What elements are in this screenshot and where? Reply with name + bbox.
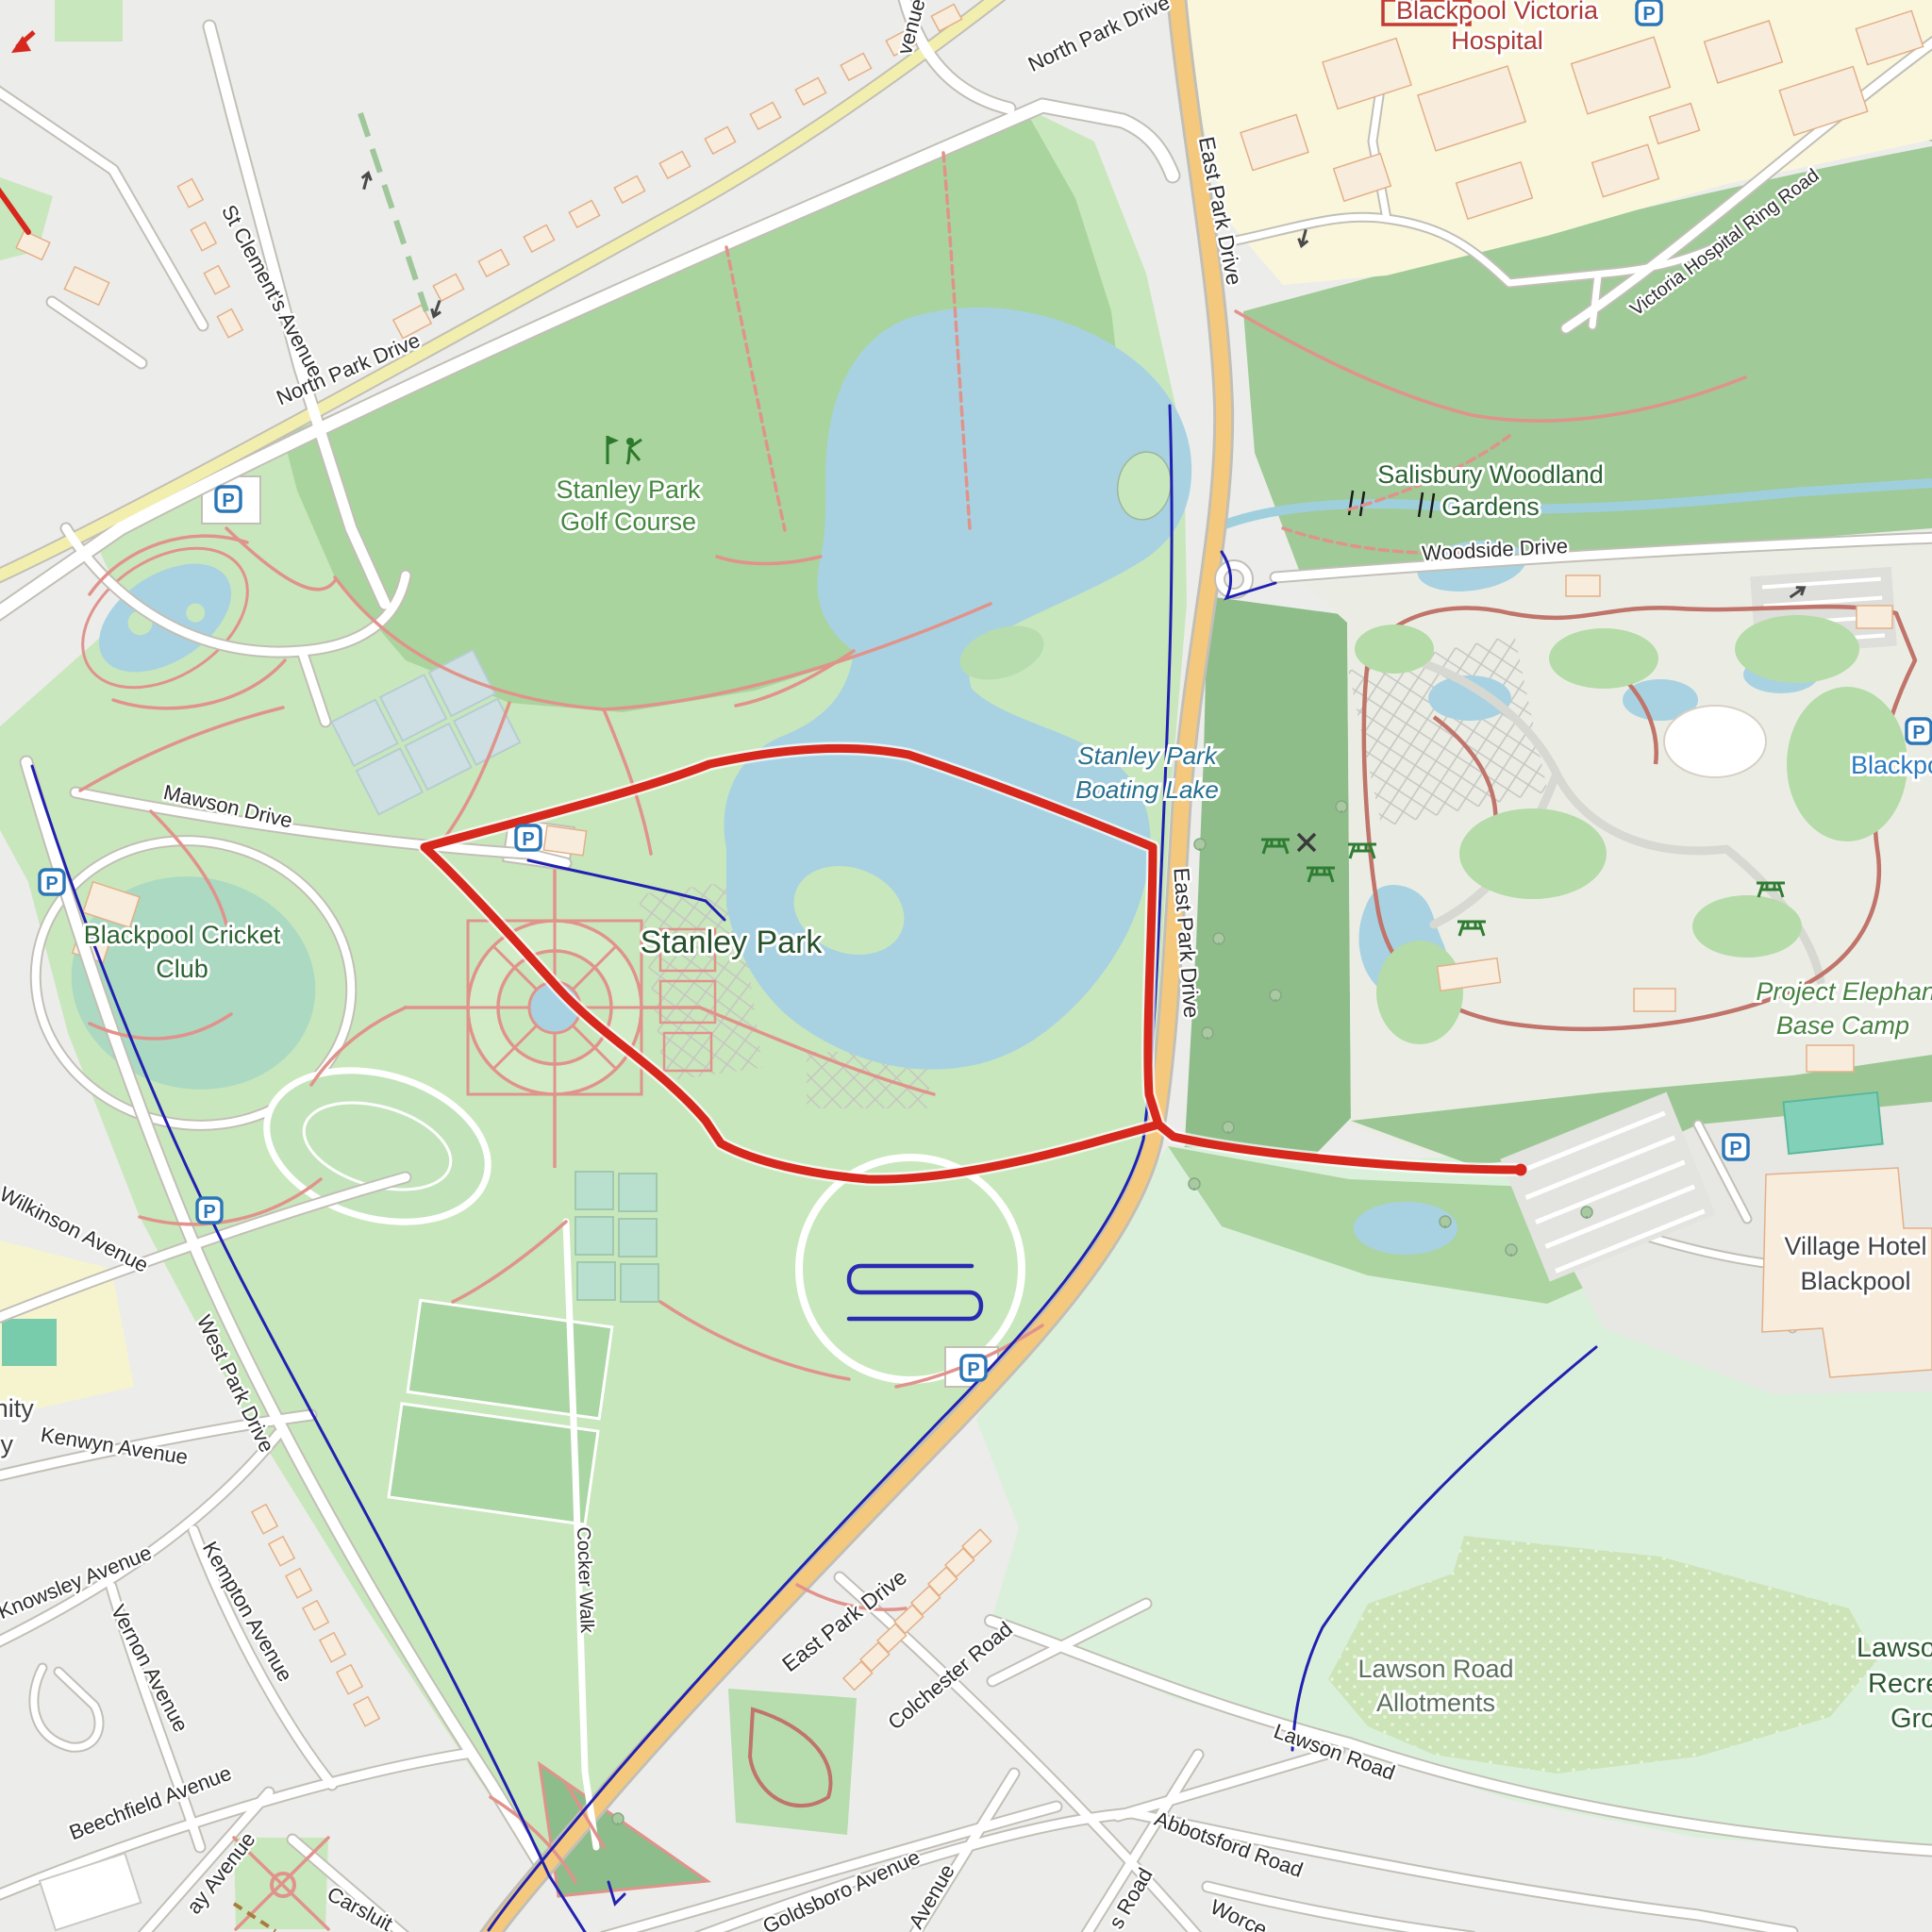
tree-icon <box>1189 1178 1200 1191</box>
label-village-hotel-line2: Blackpool <box>1800 1267 1910 1295</box>
top-left-green <box>55 0 123 42</box>
label-boating-lake-line2: Boating Lake <box>1075 775 1219 804</box>
parking-icon <box>1724 1135 1748 1159</box>
tree-icon <box>1223 1122 1234 1134</box>
label-salisbury-line1: Salisbury Woodland <box>1377 460 1604 489</box>
parking-icon <box>40 870 64 894</box>
label-cricket-line1: Blackpool Cricket <box>84 921 281 949</box>
label-golf-line2: Golf Course <box>560 508 696 536</box>
map-canvas[interactable]: P <box>0 0 1932 1932</box>
parking-icon <box>516 825 541 850</box>
pocket-park <box>728 1689 857 1835</box>
parking-icon <box>216 487 241 511</box>
label-community-line2: my <box>0 1430 13 1458</box>
parking-icon <box>1907 719 1931 743</box>
label-salisbury-line2: Gardens <box>1441 492 1540 521</box>
road-label-cocker-walk: Cocker Walk <box>573 1526 597 1634</box>
tree-icon <box>1336 801 1347 813</box>
label-village-hotel-line1: Village Hotel <box>1784 1232 1926 1260</box>
label-blackpool-zoo: Blackpoo <box>1851 751 1932 779</box>
tree-icon <box>612 1813 624 1825</box>
tree-icon <box>1202 1027 1213 1040</box>
label-community-line1: munity <box>0 1394 34 1423</box>
parking-icon <box>961 1356 986 1380</box>
tree-icon <box>1506 1244 1517 1257</box>
label-allotments-line1: Lawson Road <box>1357 1655 1513 1683</box>
tree-icon <box>1440 1216 1451 1228</box>
label-hospital-line2: Hospital <box>1451 26 1543 55</box>
label-lawson-rec-line3: Gro <box>1890 1704 1932 1734</box>
tree-icon <box>1194 839 1206 851</box>
label-boating-lake-line1: Stanley Park <box>1077 741 1218 770</box>
label-golf-line1: Stanley Park <box>556 475 701 504</box>
label-project-elephant-line1: Project Elephan <box>1756 977 1932 1006</box>
label-lawson-rec-line1: Lawso <box>1857 1633 1932 1663</box>
parking-icon <box>1637 0 1661 25</box>
school-field <box>2 1319 57 1366</box>
label-cricket-line2: Club <box>156 955 208 983</box>
label-stanley-park: Stanley Park <box>641 924 824 960</box>
tree-icon <box>1270 990 1281 1002</box>
label-project-elephant-line2: Base Camp <box>1776 1011 1909 1040</box>
route-endpoint <box>1515 1164 1527 1176</box>
south-pond <box>1354 1202 1457 1255</box>
label-hospital-line1: Blackpool Victoria <box>1396 0 1599 25</box>
label-lawson-rec-line2: Recre <box>1868 1669 1932 1699</box>
tree-icon <box>1213 933 1224 945</box>
label-allotments-line2: Allotments <box>1376 1689 1495 1717</box>
tree-icon <box>1581 1207 1592 1219</box>
parking-icon <box>197 1198 222 1223</box>
hotel-pool-building <box>1783 1092 1882 1154</box>
east-woodland-strip <box>1181 596 1351 1217</box>
